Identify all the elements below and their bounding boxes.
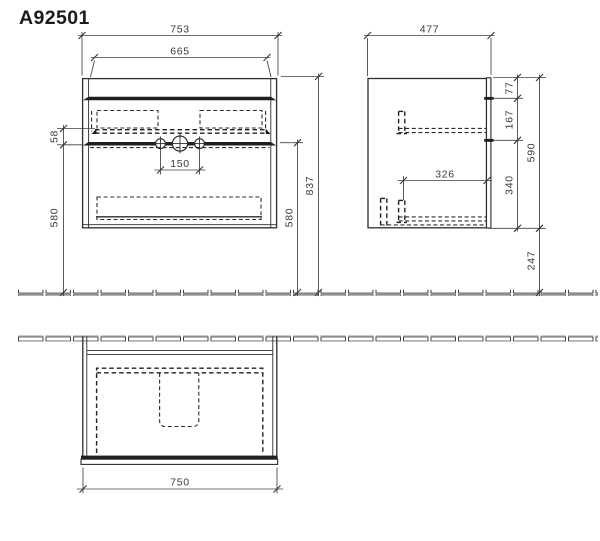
dim-side-inner-depth-label: 326 (435, 169, 455, 181)
wall-hatch (18, 335, 598, 341)
dim-tap-spacing: 150 (155, 151, 206, 175)
side-lower-drawer-hidden (381, 198, 487, 227)
dim-side-upper-drawer-label: 167 (504, 110, 516, 130)
dim-side-depth-label: 477 (420, 24, 440, 36)
dim-front-inner-width-label: 665 (170, 46, 190, 58)
dim-side-inner-depth: 326 (398, 169, 493, 201)
dim-plan-width: 750 (77, 468, 283, 494)
dim-front-total-height-label: 837 (304, 176, 316, 196)
dim-front-left-height-label: 580 (49, 208, 61, 228)
dim-tap-spacing-label: 150 (170, 158, 190, 170)
dim-side-right: 77 167 340 590 247 (488, 74, 546, 296)
dim-side-floor-clearance-label: 247 (526, 251, 538, 271)
dim-front-right: 580 837 (280, 73, 324, 296)
plan-basin-hidden-outline (97, 368, 263, 453)
front-lower-drawer-outline (96, 197, 262, 220)
dim-side-top-label: 77 (504, 81, 516, 94)
dim-front-right-height-label: 580 (284, 208, 296, 228)
dim-front-inner-width: 665 (91, 46, 272, 78)
floor-line (18, 290, 598, 296)
dim-front-lip-label: 58 (49, 130, 61, 143)
floor-hatch (18, 290, 598, 296)
plan-front-edge (81, 456, 278, 459)
dim-side-height-label: 590 (526, 143, 538, 163)
basin-rim-line (83, 97, 276, 101)
article-number: A92501 (19, 7, 90, 29)
side-front-panel (487, 78, 491, 228)
dim-front-left: 58 580 (49, 125, 96, 296)
front-view: 753 665 150 58 580 (49, 24, 325, 297)
technical-drawing: A92501 (0, 0, 600, 541)
side-upper-drawer-hidden (397, 111, 487, 133)
drawing-sheet: A92501 (0, 0, 600, 541)
plan-bowl-outline (160, 373, 199, 427)
dim-plan-width-label: 750 (170, 477, 190, 489)
dim-side-lower-drawer-label: 340 (504, 175, 516, 195)
wall-line (18, 335, 598, 341)
dim-side-depth: 477 (364, 24, 495, 77)
side-view: 477 326 77 167 340 59 (364, 24, 546, 297)
side-cabinet-outline (368, 79, 487, 228)
front-upper-drawer-outlines (92, 111, 271, 135)
plan-view: 750 (77, 336, 283, 493)
dim-front-width-label: 753 (170, 24, 190, 36)
title-block: A92501 (19, 7, 90, 29)
